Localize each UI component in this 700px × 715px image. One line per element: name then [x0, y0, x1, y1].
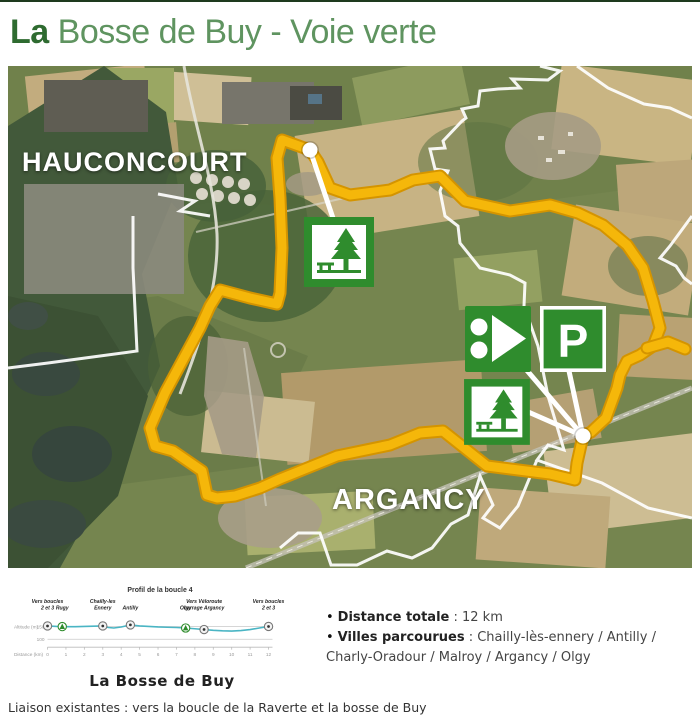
svg-text:2 et 3: 2 et 3 [40, 605, 54, 611]
svg-text:5: 5 [138, 652, 141, 658]
parking-icon: P [542, 308, 604, 370]
svg-text:Chailly-les: Chailly-les [90, 599, 116, 605]
distance-line: •Distance totale : 12 km [326, 608, 694, 628]
liaison-note: Liaison existantes : vers la boucle de l… [8, 700, 700, 715]
svg-text:12: 12 [266, 652, 272, 658]
svg-text:100: 100 [37, 637, 45, 643]
title-rest: Bosse de Buy - Voie verte [58, 13, 437, 51]
svg-text:9: 9 [212, 652, 215, 658]
towns-line: •Villes parcourues : Chailly-lès-ennery … [326, 628, 694, 668]
svg-text:0: 0 [46, 652, 49, 658]
svg-text:Rugy: Rugy [56, 605, 70, 611]
route-details: •Distance totale : 12 km •Villes parcour… [312, 582, 700, 690]
label-hauconcourt: HAUCONCOURT [22, 147, 247, 177]
svg-text:Altitude (m): Altitude (m) [14, 624, 39, 630]
distance-value: : 12 km [449, 610, 503, 625]
svg-text:7: 7 [175, 652, 178, 658]
svg-text:4: 4 [120, 652, 123, 658]
picnic-area-icon [468, 383, 526, 441]
svg-text:8: 8 [194, 652, 197, 658]
svg-text:1: 1 [65, 652, 68, 658]
page-title: La Bosse de Buy - Voie verte [10, 12, 700, 53]
svg-text:Antilly: Antilly [122, 605, 140, 611]
profile-caption: La Bosse de Buy [12, 672, 312, 690]
bullet-icon: • [326, 610, 334, 625]
svg-text:Distance (km): Distance (km) [14, 652, 44, 658]
picnic-area-icon [308, 221, 370, 283]
svg-text:10: 10 [229, 652, 235, 658]
elevation-profile: Profil de la boucle 4100150Altitude (m)0… [12, 582, 312, 690]
elevation-profile-chart: Profil de la boucle 4100150Altitude (m)0… [12, 582, 308, 665]
svg-text:Vers boucles: Vers boucles [32, 599, 64, 605]
svg-text:2: 2 [83, 652, 86, 658]
route-map-image: HAUCONCOURT ARGANCY [8, 66, 692, 568]
label-argancy: ARGANCY [332, 484, 486, 516]
info-section: Profil de la boucle 4100150Altitude (m)0… [0, 582, 700, 690]
svg-text:Profil de la boucle 4: Profil de la boucle 4 [127, 587, 192, 594]
svg-text:Ennery: Ennery [94, 605, 113, 611]
viewpoint-icon [465, 306, 531, 372]
distance-label: Distance totale [338, 610, 450, 625]
svg-text:2 et 3: 2 et 3 [261, 605, 275, 611]
parking-letter: P [558, 315, 589, 367]
bullet-icon: • [326, 630, 334, 645]
title-prefix: La [10, 13, 49, 51]
svg-text:6: 6 [157, 652, 160, 658]
svg-text:barrage Argancy: barrage Argancy [184, 605, 226, 611]
svg-text:Vers boucles: Vers boucles [253, 599, 285, 605]
towns-label: Villes parcourues [338, 630, 465, 645]
page: La Bosse de Buy - Voie verte [0, 0, 700, 715]
route-map-svg: HAUCONCOURT ARGANCY [8, 66, 692, 568]
svg-text:Vers Véloroute: Vers Véloroute [186, 599, 222, 605]
svg-text:3: 3 [101, 652, 104, 658]
svg-text:11: 11 [248, 652, 253, 658]
